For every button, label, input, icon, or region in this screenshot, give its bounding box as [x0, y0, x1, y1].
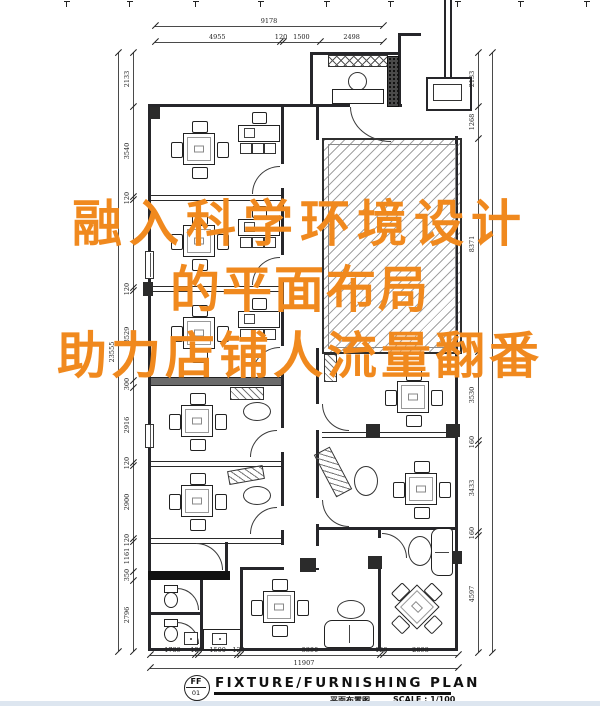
dim-right-label: 1268 [468, 114, 476, 131]
dim-right-tick [475, 649, 482, 656]
dim-right-label: 4597 [468, 585, 476, 602]
dim-right-label: 2133 [468, 71, 476, 88]
dim-top-label: 2498 [343, 33, 360, 41]
dim-left-label: 3540 [123, 143, 131, 160]
floor-plan-page: 4955120150024981739120150012053901202898… [0, 0, 600, 706]
dim-left-label: 2796 [123, 607, 131, 624]
dim-top-total-label: 9178 [261, 17, 278, 25]
dim-top-line [155, 42, 383, 43]
dim-bottom-label: 2898 [412, 646, 429, 654]
dim-right-total-tick [489, 649, 496, 656]
dim-top-label: 4955 [209, 33, 226, 41]
dim-top-total-line [155, 26, 383, 27]
overlay-text-line3: 助力店铺人流量翻番 [0, 331, 600, 381]
dim-bottom-label: 1739 [164, 646, 181, 654]
dim-left-total-tick [115, 648, 122, 655]
dim-top-tick [380, 38, 387, 45]
page-edge-strip [0, 701, 600, 706]
dim-bottom-total-line [150, 668, 458, 669]
dim-top-total-tick [380, 22, 387, 29]
dim-bottom-tick [455, 651, 462, 658]
overlay-text-line2: 的平面布局 [0, 265, 600, 315]
dim-left-label: 2900 [123, 493, 131, 510]
dim-left-label: 2133 [123, 71, 131, 88]
dim-left-label: 1161 [123, 548, 131, 565]
dim-bottom-label: 1500 [209, 646, 226, 654]
ref-divider [186, 687, 206, 688]
overlay-text-line1: 融入科学环境设计 [0, 199, 600, 249]
drawing-ref-bottom: 01 [184, 689, 208, 697]
dim-left-label: 2916 [123, 416, 131, 433]
dim-left-label: 350 [123, 569, 131, 581]
dim-right-label: 3530 [468, 387, 476, 404]
dim-bottom-total-label: 11907 [294, 659, 315, 667]
dim-top-label: 1500 [293, 33, 310, 41]
drawing-ref-top: FF [184, 677, 208, 686]
dim-bottom-label: 5390 [302, 646, 319, 654]
dim-right-label: 3433 [468, 480, 476, 497]
dim-bottom-total-tick [455, 664, 462, 671]
dim-left-tick [130, 648, 137, 655]
drawing-title: FIXTURE/FURNISHING PLAN [215, 675, 480, 691]
